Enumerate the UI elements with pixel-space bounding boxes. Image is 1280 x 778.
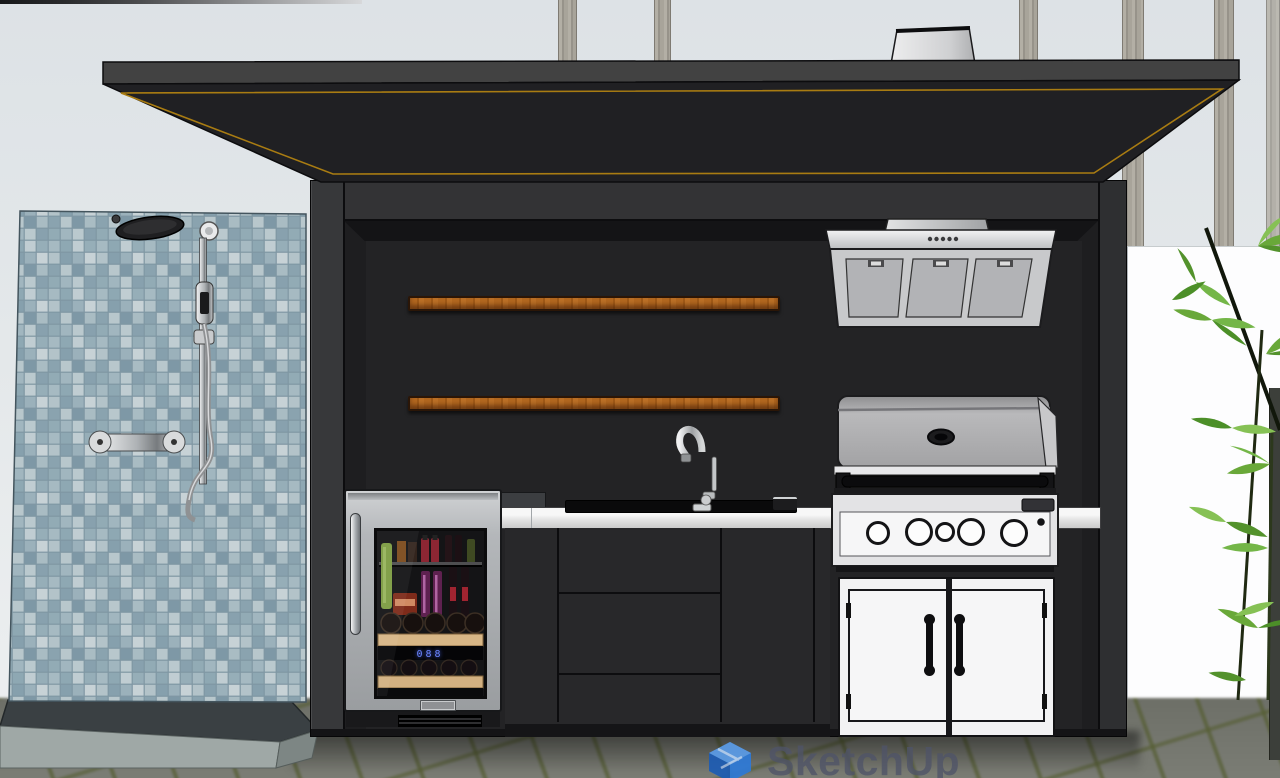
shower-wall xyxy=(0,205,320,705)
gas-grill xyxy=(825,388,1065,578)
fridge-handle[interactable] xyxy=(350,513,361,635)
door-hinge xyxy=(846,603,851,618)
grill-ledge xyxy=(834,466,1056,475)
hood-filter-panel xyxy=(846,259,903,317)
sketchup-wordmark: SketchUp xyxy=(767,740,960,778)
range-hood xyxy=(815,210,1065,335)
sketchup-viewport[interactable]: 088 SketchUp xyxy=(0,0,1280,778)
roof xyxy=(0,0,1280,200)
door-hinge xyxy=(1042,694,1047,709)
pavilion-left-post xyxy=(311,181,345,736)
right-door-handle[interactable] xyxy=(956,620,963,670)
fridge-brand-badge xyxy=(420,700,456,711)
fridge-glass-door[interactable]: 088 xyxy=(374,528,487,699)
drawer-stack[interactable] xyxy=(557,528,722,722)
left-door-handle[interactable] xyxy=(926,620,933,670)
cabinet-plinth xyxy=(505,724,830,737)
hood-filter-panel xyxy=(906,259,968,317)
cabinet-seam xyxy=(813,528,815,722)
fridge-led-display: 088 xyxy=(416,649,443,660)
roof-soffit xyxy=(103,80,1239,182)
bamboo-plant xyxy=(1130,210,1280,710)
fridge-body: 088 xyxy=(344,489,502,712)
wine-rack-front xyxy=(378,676,483,688)
door-hinge xyxy=(1042,603,1047,618)
grill-igniter[interactable] xyxy=(1037,518,1045,526)
pavilion-right-post xyxy=(1098,181,1126,736)
shower-riser-pipe xyxy=(200,238,207,484)
faucet-lever[interactable] xyxy=(712,457,717,491)
sketchup-logo-icon xyxy=(706,740,754,778)
kitchen-faucet xyxy=(650,418,730,513)
fridge-contents: 088 xyxy=(377,531,484,696)
grill-handle[interactable] xyxy=(842,476,1048,487)
hood-filter-panel xyxy=(968,259,1032,317)
soap-dispenser xyxy=(773,497,797,510)
wood-shelf-upper xyxy=(408,296,780,311)
wood-shelf-lower xyxy=(408,396,780,411)
fridge-vent-grille xyxy=(398,715,482,727)
tile-wall xyxy=(9,211,306,702)
sketchup-watermark: SketchUp xyxy=(706,740,960,778)
door-center-stile xyxy=(946,579,952,735)
fridge-plinth xyxy=(346,712,500,727)
grill-badge xyxy=(1022,499,1054,511)
door-hinge xyxy=(846,694,851,709)
access-doors xyxy=(838,577,1055,737)
base-cabinets xyxy=(505,528,830,737)
beverage-fridge: 088 xyxy=(344,489,502,727)
